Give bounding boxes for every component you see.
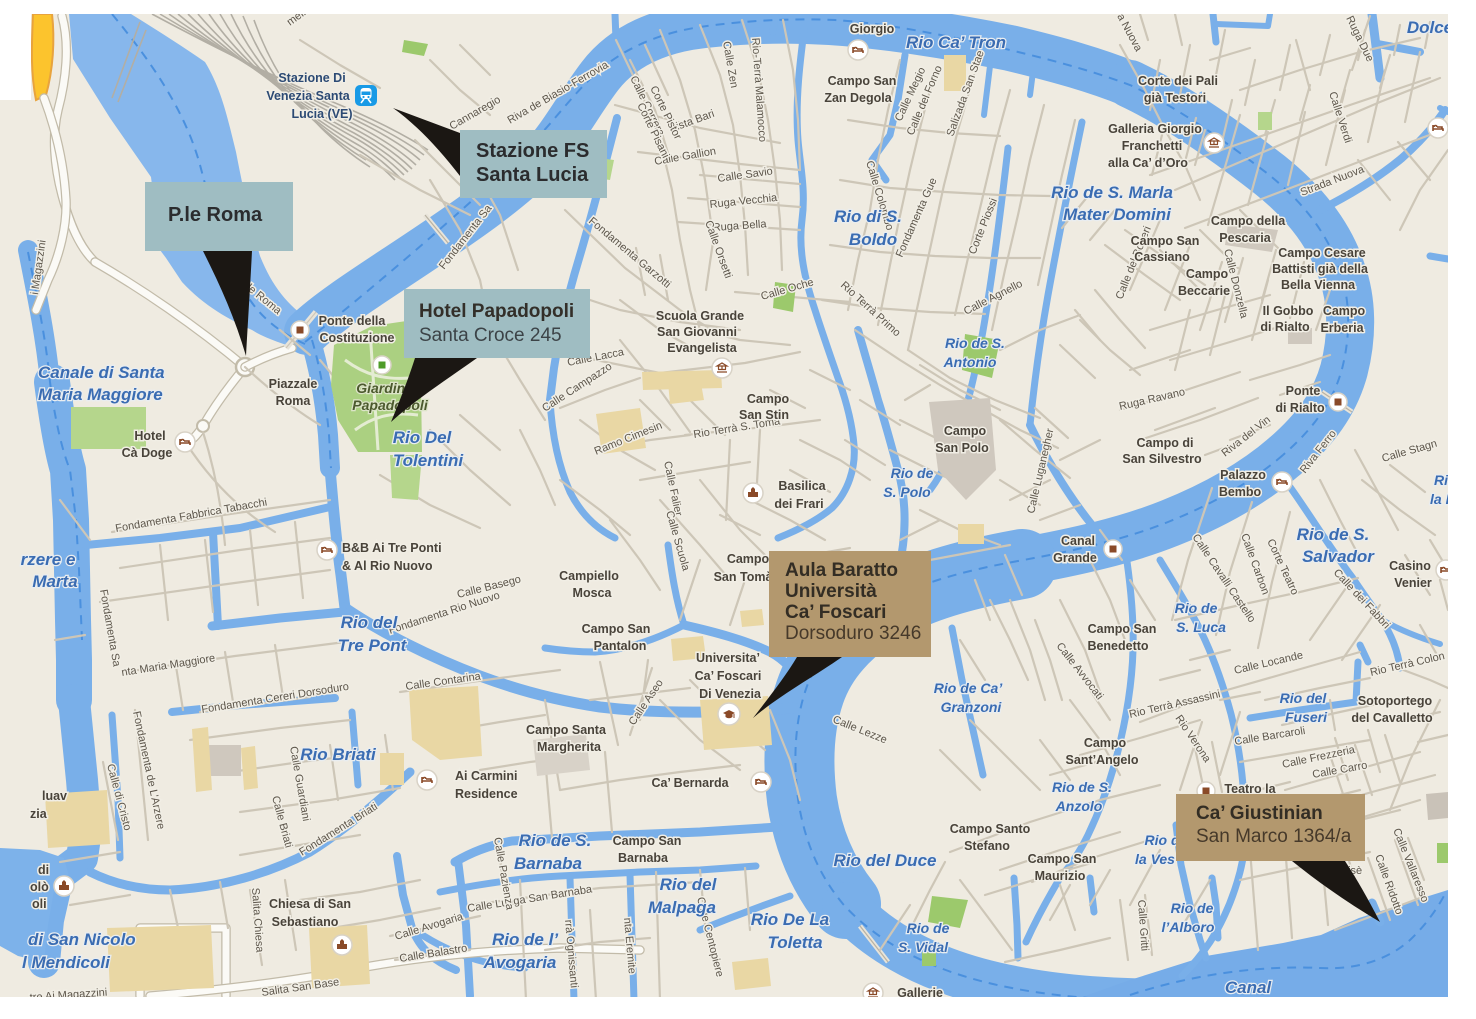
svg-text:Battisti già della: Battisti già della xyxy=(1272,262,1369,276)
svg-text:Erberia: Erberia xyxy=(1320,321,1364,335)
svg-text:Rio d: Rio d xyxy=(1145,832,1180,848)
svg-text:Boldo: Boldo xyxy=(849,230,897,249)
svg-text:Rio de Ca’: Rio de Ca’ xyxy=(934,680,1004,696)
svg-text:Canal: Canal xyxy=(1061,534,1095,548)
svg-text:zia: zia xyxy=(30,807,48,821)
svg-text:Pantalon: Pantalon xyxy=(594,639,647,653)
svg-text:Campo Santa: Campo Santa xyxy=(526,723,607,737)
svg-text:Hotel: Hotel xyxy=(134,429,165,443)
svg-text:Sotoportego: Sotoportego xyxy=(1358,694,1433,708)
svg-text:luav: luav xyxy=(42,789,67,803)
svg-text:S. Vidal: S. Vidal xyxy=(898,939,949,955)
svg-text:Evangelista: Evangelista xyxy=(667,341,738,355)
svg-text:San Polo: San Polo xyxy=(935,441,989,455)
svg-text:Rio de S.: Rio de S. xyxy=(945,335,1005,351)
svg-text:Università: Università xyxy=(785,581,877,602)
svg-text:Universita’: Universita’ xyxy=(696,651,760,665)
svg-text:di Rialto: di Rialto xyxy=(1275,401,1325,415)
svg-text:Teatro la: Teatro la xyxy=(1224,782,1276,796)
svg-text:Ponte della: Ponte della xyxy=(319,314,387,328)
svg-text:Campo: Campo xyxy=(747,392,790,406)
svg-text:Benedetto: Benedetto xyxy=(1087,639,1148,653)
svg-text:Sebastiano: Sebastiano xyxy=(272,915,339,929)
svg-text:Roma: Roma xyxy=(276,394,312,408)
svg-text:di San Nicolo: di San Nicolo xyxy=(28,930,136,949)
svg-text:P.le Roma: P.le Roma xyxy=(168,204,263,226)
svg-text:di: di xyxy=(38,863,49,877)
svg-text:Rio Del: Rio Del xyxy=(393,428,453,447)
svg-text:Piazzale: Piazzale xyxy=(269,377,318,391)
svg-text:Costituzione: Costituzione xyxy=(320,331,395,345)
svg-text:Campo: Campo xyxy=(944,424,987,438)
svg-text:dei Frari: dei Frari xyxy=(774,497,823,511)
svg-text:S. Luca: S. Luca xyxy=(1176,619,1226,635)
svg-text:Campiello: Campiello xyxy=(559,569,619,583)
svg-text:Ca’ Giustinian: Ca’ Giustinian xyxy=(1196,803,1323,824)
svg-text:Ca’ Bernarda: Ca’ Bernarda xyxy=(651,776,729,790)
svg-text:Rio de: Rio de xyxy=(1175,600,1218,616)
svg-text:Campo: Campo xyxy=(727,552,770,566)
svg-text:Cà Doge: Cà Doge xyxy=(122,446,173,460)
svg-text:Grande: Grande xyxy=(1053,551,1097,565)
svg-text:Rio Briati: Rio Briati xyxy=(300,745,377,764)
svg-text:Rio de S.: Rio de S. xyxy=(519,831,592,850)
svg-text:Campo San: Campo San xyxy=(1088,622,1157,636)
svg-text:Franchetti: Franchetti xyxy=(1122,139,1182,153)
svg-text:Bella Vienna: Bella Vienna xyxy=(1281,278,1356,292)
svg-text:Il Gobbo: Il Gobbo xyxy=(1263,304,1314,318)
svg-text:Cassiano: Cassiano xyxy=(1134,250,1190,264)
svg-text:Barnaba: Barnaba xyxy=(618,851,669,865)
svg-text:Salvador: Salvador xyxy=(1302,547,1375,566)
svg-text:Campo di: Campo di xyxy=(1137,436,1194,450)
svg-text:Beccarie: Beccarie xyxy=(1178,284,1230,298)
svg-text:Stazione Di: Stazione Di xyxy=(278,71,345,85)
svg-text:Aula Baratto: Aula Baratto xyxy=(785,560,898,581)
svg-text:Rio de S. Marla: Rio de S. Marla xyxy=(1051,183,1173,202)
svg-text:Campo San: Campo San xyxy=(582,622,651,636)
svg-text:San Stin: San Stin xyxy=(739,408,789,422)
svg-text:Stazione FS: Stazione FS xyxy=(476,140,589,162)
svg-text:Campo Cesare: Campo Cesare xyxy=(1278,246,1366,260)
svg-text:Fuseri: Fuseri xyxy=(1285,709,1328,725)
svg-text:Mater Domini: Mater Domini xyxy=(1063,205,1172,224)
svg-text:Campo San: Campo San xyxy=(613,834,682,848)
svg-text:Basilica: Basilica xyxy=(778,479,826,493)
svg-text:San Silvestro: San Silvestro xyxy=(1122,452,1202,466)
svg-text:già Testori: già Testori xyxy=(1144,91,1206,105)
svg-text:Canal: Canal xyxy=(1225,978,1273,997)
svg-text:Giorgio: Giorgio xyxy=(850,22,895,36)
svg-text:San Tomà: San Tomà xyxy=(714,570,773,584)
svg-text:oli: oli xyxy=(32,897,47,911)
svg-text:Galleria Giorgio: Galleria Giorgio xyxy=(1108,122,1202,136)
svg-text:Dorsoduro 3246: Dorsoduro 3246 xyxy=(785,623,921,644)
svg-text:Malpaga: Malpaga xyxy=(648,898,716,917)
svg-text:Campo della: Campo della xyxy=(1211,214,1286,228)
svg-text:Ponte: Ponte xyxy=(1286,384,1321,398)
svg-text:Campo San: Campo San xyxy=(828,74,897,88)
svg-text:& Al Rio Nuovo: & Al Rio Nuovo xyxy=(342,559,433,573)
svg-text:Venier: Venier xyxy=(1394,576,1432,590)
svg-text:Mosca: Mosca xyxy=(573,586,613,600)
svg-text:Sant’Angelo: Sant’Angelo xyxy=(1066,753,1139,767)
svg-text:Rio de S.: Rio de S. xyxy=(1052,779,1112,795)
svg-text:Rio Ca’ Tron: Rio Ca’ Tron xyxy=(906,33,1006,52)
svg-text:Residence: Residence xyxy=(455,787,518,801)
svg-text:Margherita: Margherita xyxy=(537,740,602,754)
svg-text:Rio de: Rio de xyxy=(891,465,934,481)
svg-text:Dolce: Dolce xyxy=(1407,18,1453,37)
svg-text:alla Ca’ d’Oro: alla Ca’ d’Oro xyxy=(1108,156,1188,170)
svg-text:Rio de l’: Rio de l’ xyxy=(492,930,558,949)
svg-text:di Rialto: di Rialto xyxy=(1260,320,1310,334)
svg-text:Ca’ Foscari: Ca’ Foscari xyxy=(695,669,762,683)
svg-text:Maria Maggiore: Maria Maggiore xyxy=(38,385,163,404)
svg-text:Venezia Santa: Venezia Santa xyxy=(266,89,350,103)
svg-text:Rio di S.: Rio di S. xyxy=(834,207,902,226)
svg-text:l Mendicoli: l Mendicoli xyxy=(22,953,111,972)
svg-text:Stefano: Stefano xyxy=(964,839,1010,853)
svg-text:Casino: Casino xyxy=(1389,559,1431,573)
svg-text:l’Alboro: l’Alboro xyxy=(1162,919,1215,935)
svg-text:Tolentini: Tolentini xyxy=(393,451,464,470)
svg-text:Granzoni: Granzoni xyxy=(941,699,1003,715)
svg-text:San Giovanni: San Giovanni xyxy=(657,325,737,339)
svg-text:Rio del: Rio del xyxy=(660,875,718,894)
svg-text:olò: olò xyxy=(30,880,49,894)
svg-text:Rio de: Rio de xyxy=(1171,900,1214,916)
svg-text:Avogaria: Avogaria xyxy=(483,953,557,972)
svg-text:Campo San: Campo San xyxy=(1028,852,1097,866)
svg-text:Campo: Campo xyxy=(1186,267,1229,281)
svg-text:Rio del: Rio del xyxy=(1280,690,1328,706)
svg-text:Toletta: Toletta xyxy=(767,933,822,952)
svg-text:Rio de S.: Rio de S. xyxy=(1297,525,1370,544)
svg-text:Barnaba: Barnaba xyxy=(514,854,582,873)
svg-text:Maurizio: Maurizio xyxy=(1035,869,1086,883)
svg-text:Di Venezia: Di Venezia xyxy=(699,687,762,701)
svg-text:la Ves: la Ves xyxy=(1135,851,1175,867)
svg-text:Bembo: Bembo xyxy=(1219,485,1262,499)
svg-text:Tre Pont: Tre Pont xyxy=(338,636,408,655)
svg-text:rzere e: rzere e xyxy=(21,550,76,569)
svg-text:Zan Degola: Zan Degola xyxy=(824,91,892,105)
svg-text:Campo: Campo xyxy=(1084,736,1127,750)
svg-text:Ca’ Foscari: Ca’ Foscari xyxy=(785,602,886,623)
svg-text:Scuola Grande: Scuola Grande xyxy=(656,309,744,323)
svg-text:Ai Carmini: Ai Carmini xyxy=(455,769,518,783)
svg-text:Marta: Marta xyxy=(32,572,77,591)
svg-text:Anzolo: Anzolo xyxy=(1055,798,1103,814)
svg-text:del Cavalletto: del Cavalletto xyxy=(1351,711,1433,725)
svg-text:Hotel Papadopoli: Hotel Papadopoli xyxy=(419,301,574,322)
svg-text:Campo: Campo xyxy=(1323,304,1366,318)
svg-text:Pescaria: Pescaria xyxy=(1219,231,1271,245)
svg-text:Santa Croce 245: Santa Croce 245 xyxy=(419,325,562,346)
svg-text:Antonio: Antonio xyxy=(943,354,997,370)
svg-text:Rio del: Rio del xyxy=(341,613,399,632)
svg-text:Corte dei Pali: Corte dei Pali xyxy=(1138,74,1218,88)
svg-text:Campo Santo: Campo Santo xyxy=(950,822,1031,836)
svg-text:Rio de: Rio de xyxy=(907,920,950,936)
svg-text:Rio del Duce: Rio del Duce xyxy=(834,851,937,870)
svg-text:Chiesa di San: Chiesa di San xyxy=(269,897,351,911)
svg-text:Canale di Santa: Canale di Santa xyxy=(38,363,165,382)
svg-text:Lucia (VE): Lucia (VE) xyxy=(291,107,352,121)
svg-text:B&B Ai Tre Ponti: B&B Ai Tre Ponti xyxy=(342,541,442,555)
svg-text:Santa Lucia: Santa Lucia xyxy=(476,164,589,186)
svg-text:San Marco 1364/a: San Marco 1364/a xyxy=(1196,826,1352,847)
svg-text:Rio De La: Rio De La xyxy=(751,910,829,929)
svg-text:Campo San: Campo San xyxy=(1131,234,1200,248)
svg-text:S. Polo: S. Polo xyxy=(883,484,931,500)
svg-text:Palazzo: Palazzo xyxy=(1220,468,1266,482)
